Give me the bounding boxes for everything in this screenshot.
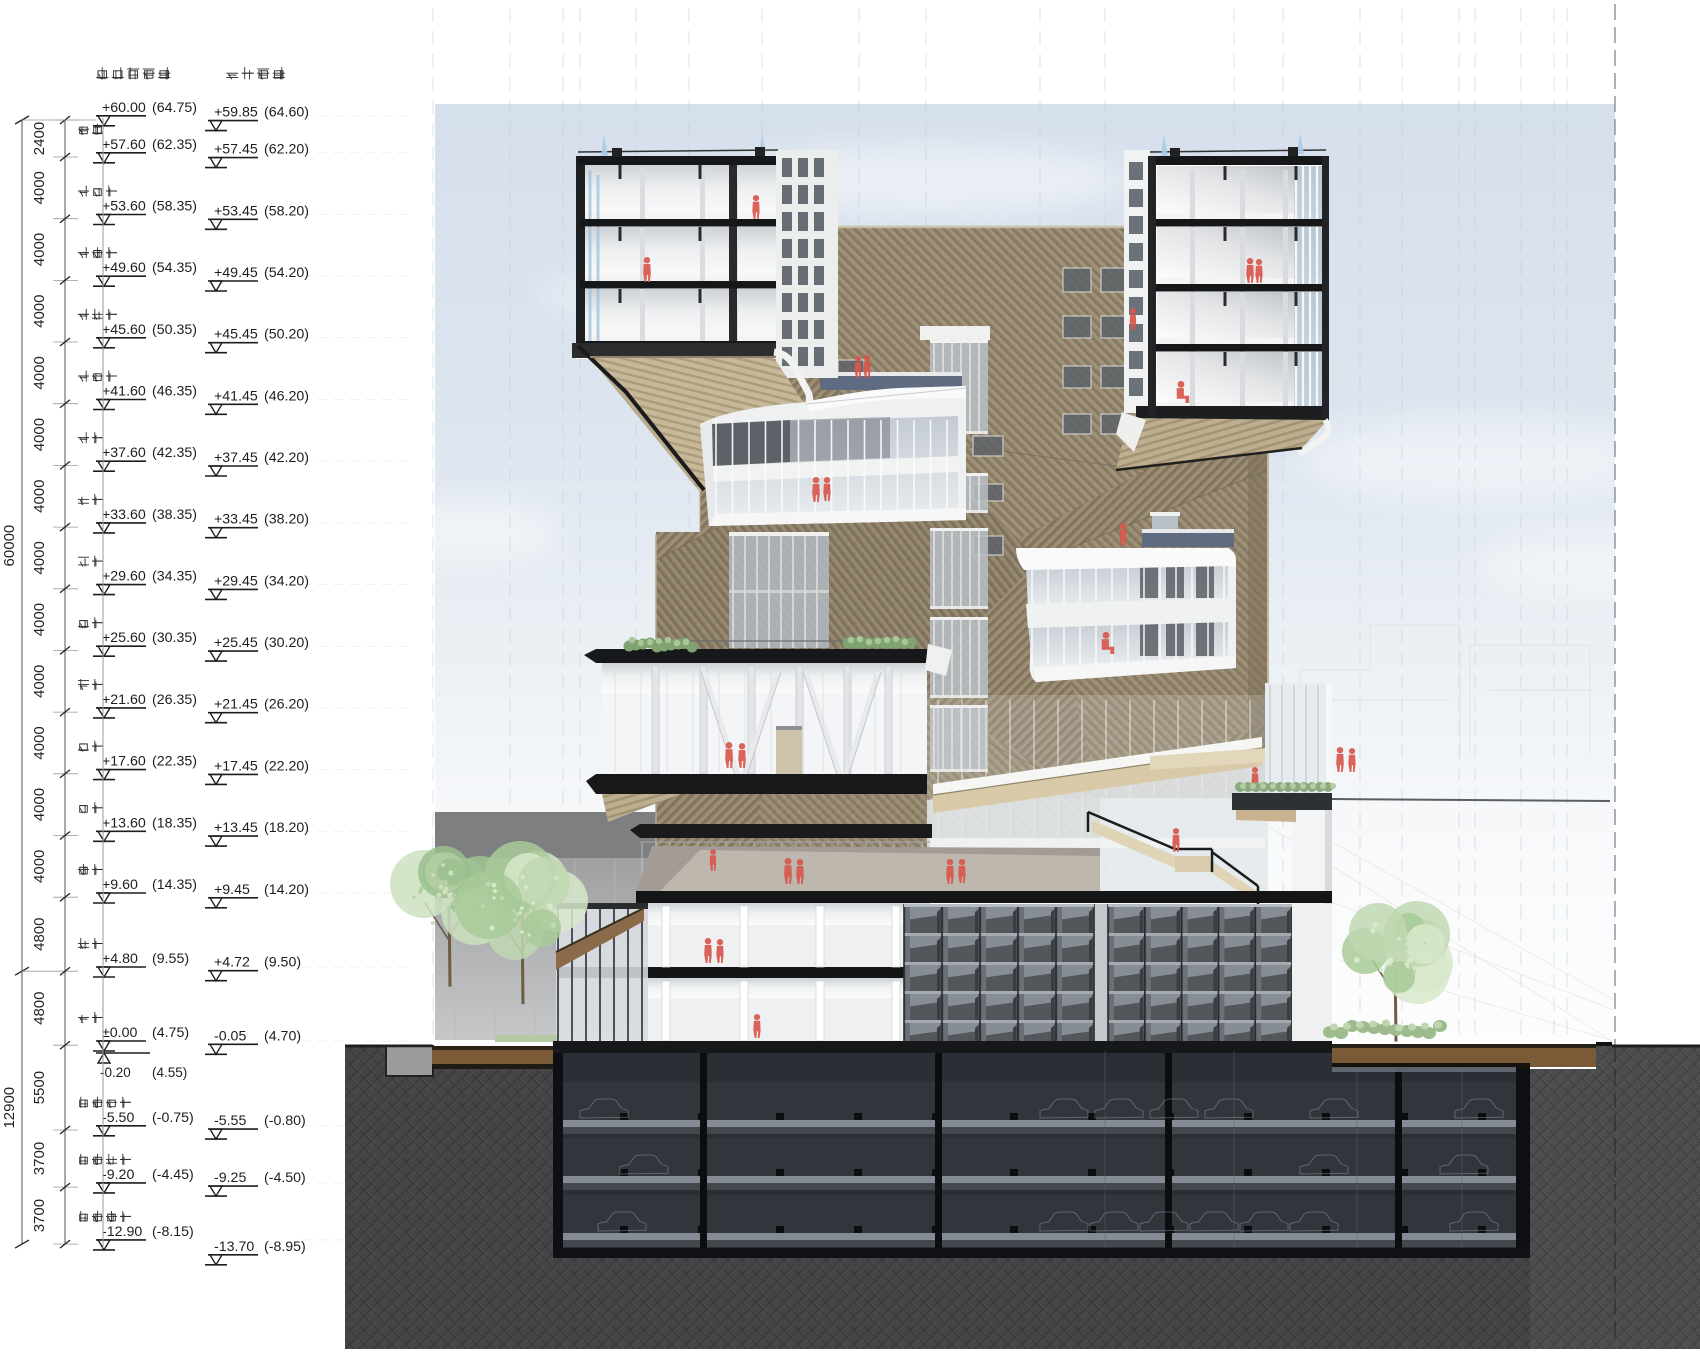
svg-text:+60.00: +60.00	[102, 100, 146, 116]
svg-text:(54.20): (54.20)	[264, 265, 309, 281]
svg-text:+49.60: +49.60	[102, 260, 146, 276]
svg-text:+9.60: +9.60	[102, 877, 138, 893]
svg-text:-9.20: -9.20	[102, 1167, 134, 1183]
svg-text:4000: 4000	[31, 726, 48, 759]
svg-text:(-8.95): (-8.95)	[264, 1239, 306, 1255]
svg-text:(22.20): (22.20)	[264, 758, 309, 774]
svg-text:+57.45: +57.45	[214, 142, 258, 158]
svg-text:-5.55: -5.55	[214, 1113, 246, 1129]
svg-text:(26.35): (26.35)	[152, 692, 197, 708]
svg-text:4000: 4000	[31, 603, 48, 636]
svg-text:+29.60: +29.60	[102, 569, 146, 585]
svg-text:+37.45: +37.45	[214, 450, 258, 466]
svg-text:-9.25: -9.25	[214, 1170, 246, 1186]
svg-text:2400: 2400	[31, 122, 48, 155]
svg-text:+13.45: +13.45	[214, 820, 258, 836]
svg-text:-13.70: -13.70	[214, 1239, 254, 1255]
svg-text:+45.45: +45.45	[214, 327, 258, 343]
svg-text:+41.45: +41.45	[214, 388, 258, 404]
svg-text:(62.20): (62.20)	[264, 142, 309, 158]
svg-text:(30.20): (30.20)	[264, 635, 309, 651]
svg-text:-0.20: -0.20	[100, 1065, 131, 1080]
svg-text:(46.35): (46.35)	[152, 384, 197, 400]
svg-text:12900: 12900	[1, 1087, 18, 1129]
svg-text:(42.20): (42.20)	[264, 450, 309, 466]
svg-text:(22.35): (22.35)	[152, 754, 197, 770]
svg-text:(58.20): (58.20)	[264, 203, 309, 219]
svg-text:4000: 4000	[31, 295, 48, 328]
svg-text:4000: 4000	[31, 788, 48, 821]
svg-text:(18.20): (18.20)	[264, 820, 309, 836]
svg-text:-5.50: -5.50	[102, 1110, 134, 1126]
svg-text:(38.35): (38.35)	[152, 507, 197, 523]
svg-text:+29.45: +29.45	[214, 573, 258, 589]
svg-text:+45.60: +45.60	[102, 322, 146, 338]
svg-text:(34.35): (34.35)	[152, 569, 197, 585]
svg-text:(-0.80): (-0.80)	[264, 1113, 306, 1129]
svg-text:(9.50): (9.50)	[264, 955, 301, 971]
svg-text:4000: 4000	[31, 418, 48, 451]
svg-text:-0.05: -0.05	[214, 1028, 246, 1044]
svg-text:(38.20): (38.20)	[264, 512, 309, 528]
svg-text:(26.20): (26.20)	[264, 697, 309, 713]
svg-text:(14.20): (14.20)	[264, 882, 309, 898]
svg-text:+4.80: +4.80	[102, 951, 138, 967]
svg-text:+33.60: +33.60	[102, 507, 146, 523]
svg-text:(4.70): (4.70)	[264, 1028, 301, 1044]
svg-text:4800: 4800	[31, 992, 48, 1025]
svg-text:(4.75): (4.75)	[152, 1025, 189, 1041]
svg-text:+25.45: +25.45	[214, 635, 258, 651]
svg-text:4000: 4000	[31, 233, 48, 266]
svg-text:+49.45: +49.45	[214, 265, 258, 281]
svg-text:(62.35): (62.35)	[152, 137, 197, 153]
svg-text:(64.60): (64.60)	[264, 105, 309, 121]
svg-text:4000: 4000	[31, 541, 48, 574]
svg-text:5500: 5500	[31, 1071, 48, 1104]
svg-text:-12.90: -12.90	[102, 1224, 142, 1240]
svg-text:3700: 3700	[31, 1199, 48, 1232]
svg-text:+41.60: +41.60	[102, 384, 146, 400]
svg-text:(42.35): (42.35)	[152, 445, 197, 461]
svg-text:+17.60: +17.60	[102, 754, 146, 770]
svg-text:(46.20): (46.20)	[264, 388, 309, 404]
svg-text:±0.00: ±0.00	[102, 1025, 138, 1041]
svg-text:4000: 4000	[31, 665, 48, 698]
svg-text:60000: 60000	[1, 525, 18, 567]
svg-text:+53.45: +53.45	[214, 203, 258, 219]
svg-text:+59.85: +59.85	[214, 105, 258, 121]
svg-text:(4.55): (4.55)	[152, 1065, 187, 1080]
svg-text:+13.60: +13.60	[102, 815, 146, 831]
svg-text:(18.35): (18.35)	[152, 815, 197, 831]
svg-text:(-4.45): (-4.45)	[152, 1167, 194, 1183]
svg-text:(-4.50): (-4.50)	[264, 1170, 306, 1186]
svg-text:(-8.15): (-8.15)	[152, 1224, 194, 1240]
svg-text:+21.45: +21.45	[214, 697, 258, 713]
svg-text:(30.35): (30.35)	[152, 630, 197, 646]
svg-text:4000: 4000	[31, 850, 48, 883]
svg-text:+17.45: +17.45	[214, 758, 258, 774]
svg-text:(34.20): (34.20)	[264, 573, 309, 589]
svg-text:(50.20): (50.20)	[264, 327, 309, 343]
svg-text:+9.45: +9.45	[214, 882, 250, 898]
svg-text:+33.45: +33.45	[214, 512, 258, 528]
svg-text:(50.35): (50.35)	[152, 322, 197, 338]
svg-text:+25.60: +25.60	[102, 630, 146, 646]
svg-text:(54.35): (54.35)	[152, 260, 197, 276]
svg-text:+21.60: +21.60	[102, 692, 146, 708]
svg-text:+53.60: +53.60	[102, 199, 146, 215]
svg-text:4000: 4000	[31, 480, 48, 513]
svg-text:4000: 4000	[31, 171, 48, 204]
svg-text:4000: 4000	[31, 356, 48, 389]
svg-text:(58.35): (58.35)	[152, 199, 197, 215]
svg-text:(14.35): (14.35)	[152, 877, 197, 893]
svg-text:+37.60: +37.60	[102, 445, 146, 461]
svg-text:+4.72: +4.72	[214, 955, 250, 971]
svg-text:3700: 3700	[31, 1142, 48, 1175]
svg-text:(9.55): (9.55)	[152, 951, 189, 967]
svg-text:4800: 4800	[31, 918, 48, 951]
svg-text:+57.60: +57.60	[102, 137, 146, 153]
svg-text:(-0.75): (-0.75)	[152, 1110, 194, 1126]
svg-text:(64.75): (64.75)	[152, 100, 197, 116]
